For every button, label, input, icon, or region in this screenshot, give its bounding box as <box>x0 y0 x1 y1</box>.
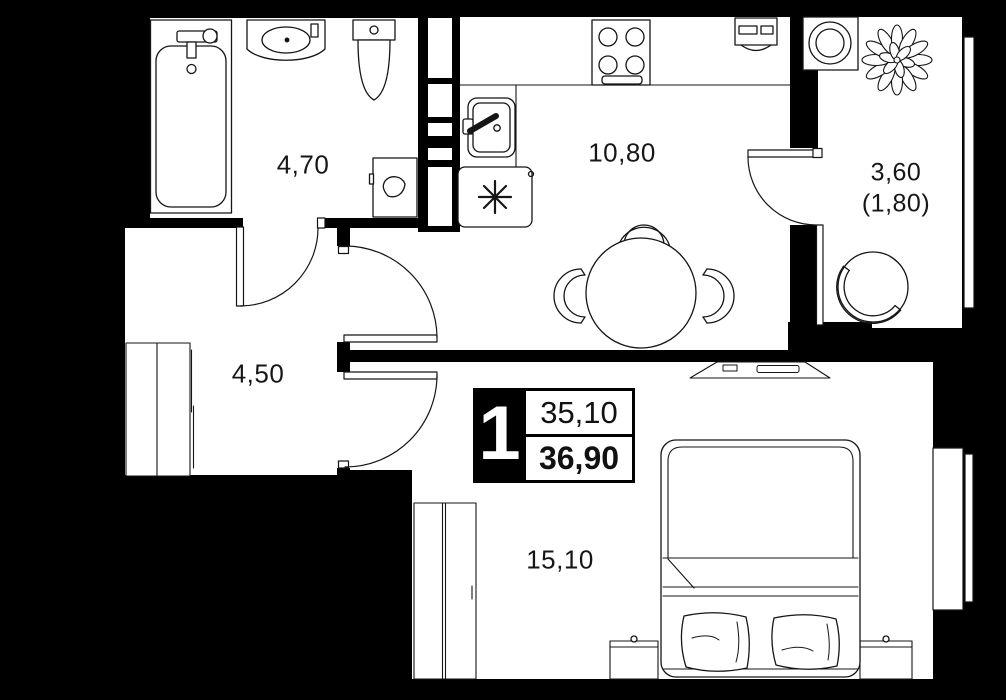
balcony-door-leaf <box>748 150 818 157</box>
washing-machine-icon <box>458 167 534 227</box>
room-area-balcony-coefficient: (1,80) <box>862 190 930 219</box>
wardrobe-icon <box>414 503 476 679</box>
kitchen-entry-floor <box>350 228 460 350</box>
living-room-window <box>965 454 973 602</box>
nightstand-icon <box>610 636 658 679</box>
bed-icon <box>661 440 860 677</box>
total-area-value: 36,90 <box>526 437 632 480</box>
kitchen-door-leaf <box>344 335 437 342</box>
living-room-window-sill <box>933 448 963 610</box>
balcony-chair-icon <box>837 252 908 323</box>
fridge-icon <box>735 18 777 51</box>
room-count: 1 <box>476 391 523 480</box>
balcony-window <box>964 37 974 308</box>
room-area-living-room: 15,10 <box>526 545 594 576</box>
hallway-wardrobe-icon <box>126 343 194 476</box>
balcony-washer-icon <box>803 17 858 70</box>
room-area-bathroom: 4,70 <box>277 150 330 181</box>
room-area-balcony: 3,60 <box>871 159 922 188</box>
living-area-value: 35,10 <box>526 391 632 434</box>
balcony-glazed-partition <box>817 225 824 325</box>
room-area-hallway: 4,50 <box>232 359 285 390</box>
kitchen-sink-icon <box>463 98 515 157</box>
nightstand-icon <box>860 636 912 679</box>
living-room-door-leaf <box>344 372 437 379</box>
bathroom-door-leaf <box>237 227 244 306</box>
stove-icon <box>592 20 650 85</box>
dining-table-icon <box>586 238 696 348</box>
bathroom-cabinet-icon <box>370 158 418 217</box>
washbasin-icon <box>247 20 325 60</box>
pillow-icon <box>681 613 749 672</box>
apartment-info-box: 1 35,10 36,90 <box>473 388 635 483</box>
floor-plan-svg <box>0 0 1006 700</box>
pillow-icon <box>772 615 839 670</box>
room-area-kitchen: 10,80 <box>588 138 656 169</box>
floor-plan: 4,70 10,80 3,60 (1,80) 4,50 15,10 1 35,1… <box>0 0 1006 700</box>
